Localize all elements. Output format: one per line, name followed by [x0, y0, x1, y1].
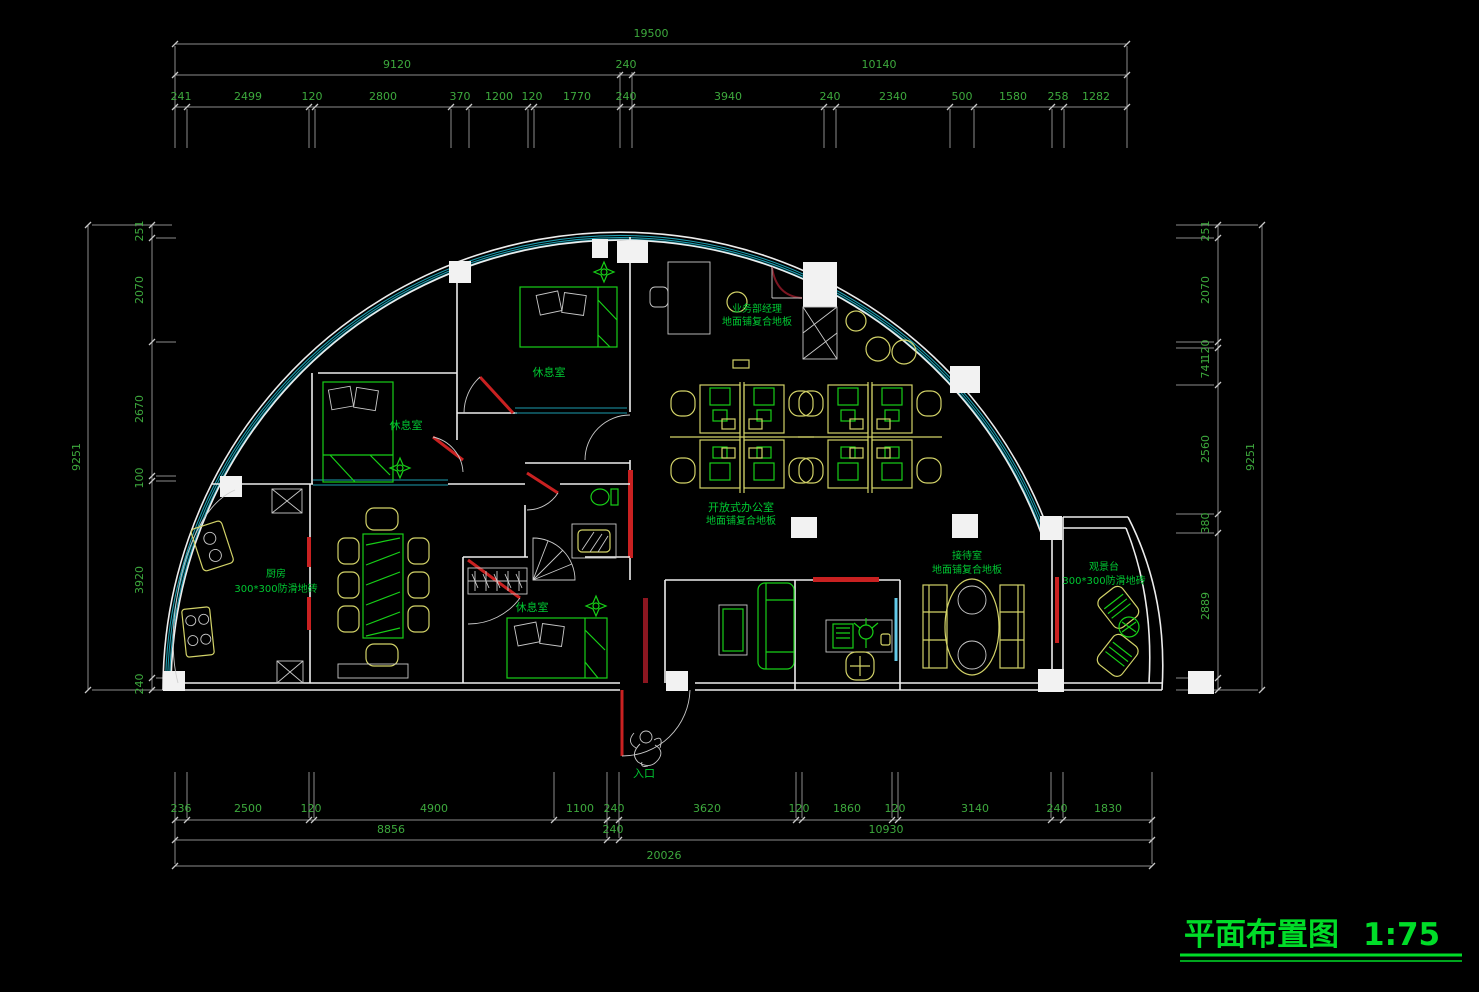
dim-label: 120 [1199, 340, 1212, 361]
room-floor-label: 300*300防滑地砖 [1062, 574, 1145, 587]
building-shell [163, 232, 1163, 690]
room-label: 业务部经理 [732, 302, 782, 315]
drawing-title: 平面布置图 [1184, 917, 1339, 953]
lounge-furniture [719, 583, 794, 669]
dim-label: 100 [133, 468, 146, 489]
workstation-cluster [798, 382, 942, 493]
dim-label: 10930 [869, 823, 904, 836]
dim-label: 370 [450, 90, 471, 103]
dim-label: 240 [616, 58, 637, 71]
entrance-figure [630, 731, 661, 767]
door-red [813, 577, 879, 582]
dim-label: 240 [1047, 802, 1068, 815]
room-floor-label: 地面铺复合地板 [932, 563, 1002, 576]
deck-furniture [1094, 584, 1141, 680]
door-leaf [480, 377, 513, 413]
dim-label: 120 [301, 802, 322, 815]
door-red [1055, 577, 1059, 643]
cad-viewport: 19500 9120 240 10140 241 2499 120 2800 3… [0, 0, 1479, 992]
dim-label: 120 [302, 90, 323, 103]
drawing-scale: 1:75 [1363, 917, 1440, 953]
dim-label: 240 [820, 90, 841, 103]
room-label: 接待室 [952, 549, 982, 562]
dim-label: 8856 [377, 823, 405, 836]
dim-label: 380 [1199, 513, 1212, 534]
door-leaf [527, 473, 558, 493]
dim-label: 9120 [383, 58, 411, 71]
red-wall-segment [307, 537, 311, 567]
dim-label: 251 [133, 221, 146, 242]
room-floor-label: 地面铺复合地板 [706, 514, 776, 527]
dim-label: 3620 [693, 802, 721, 815]
red-wall-segment [307, 597, 311, 630]
dim-label: 10140 [862, 58, 897, 71]
dim-label: 2670 [133, 395, 146, 423]
bed-mid [323, 382, 393, 482]
dim-label: 20026 [647, 849, 682, 862]
dim-label: 240 [133, 674, 146, 695]
dim-label: 3940 [714, 90, 742, 103]
dim-label: 1860 [833, 802, 861, 815]
reception-furniture [923, 579, 1024, 675]
dim-label: 241 [171, 90, 192, 103]
room-floor-label: 300*300防滑地砖 [234, 582, 317, 595]
dimension-chain-right: 251 2070 120 741 2560 380 2889 240 9251 [1176, 221, 1265, 695]
room-floor-label: 地面铺复合地板 [722, 315, 792, 328]
dim-label: 2499 [234, 90, 262, 103]
dim-label: 251 [1199, 221, 1212, 242]
dimension-chain-left: 251 2070 2670 100 3920 240 9251 [70, 221, 176, 695]
room-label: 休息室 [533, 365, 566, 379]
dim-label: 2070 [133, 276, 146, 304]
dim-label: 9251 [1244, 443, 1257, 471]
entrance-label: 入口 [633, 767, 655, 780]
dim-label: 2889 [1199, 592, 1212, 620]
interior-walls [212, 237, 1059, 690]
dim-label: 240 [604, 802, 625, 815]
dim-label: 1770 [563, 90, 591, 103]
dim-label: 500 [952, 90, 973, 103]
dim-label: 236 [171, 802, 192, 815]
dim-label: 2500 [234, 802, 262, 815]
bed-bottom [507, 618, 607, 678]
dim-label: 1282 [1082, 90, 1110, 103]
dim-label: 4900 [420, 802, 448, 815]
bed-top [520, 287, 617, 347]
title-block: 平面布置图 1:75 [1180, 917, 1462, 961]
floorplan-canvas: 19500 9120 240 10140 241 2499 120 2800 3… [0, 0, 1479, 992]
dining-set [338, 508, 429, 678]
dim-label: 240 [603, 823, 624, 836]
dim-label: 3920 [133, 566, 146, 594]
dim-label: 1830 [1094, 802, 1122, 815]
dim-label: 120 [885, 802, 906, 815]
dim-label: 741 [1199, 358, 1212, 379]
room-label: 休息室 [390, 418, 423, 432]
room-label: 休息室 [516, 600, 549, 614]
dim-label: 120 [522, 90, 543, 103]
dim-label: 1200 [485, 90, 513, 103]
dim-label: 1580 [999, 90, 1027, 103]
room-label: 观景台 [1089, 560, 1119, 573]
office-desk-group [826, 618, 892, 680]
dimension-chain-bottom: 236 2500 120 4900 1100 240 3620 120 1860… [171, 772, 1156, 869]
red-wall-segment [643, 598, 648, 683]
workstation-cluster [670, 382, 814, 493]
room-label: 开放式办公室 [708, 500, 774, 514]
dim-label: 2800 [369, 90, 397, 103]
dim-label: 2560 [1199, 435, 1212, 463]
dim-label: 2340 [879, 90, 907, 103]
dimension-chain-top: 19500 9120 240 10140 241 2499 120 2800 3… [171, 27, 1131, 148]
dim-label: 120 [789, 802, 810, 815]
dim-label: 258 [1048, 90, 1069, 103]
room-label: 厨房 [266, 567, 286, 580]
dim-label: 240 [616, 90, 637, 103]
dim-label: 2070 [1199, 276, 1212, 304]
bathroom-fixtures [533, 489, 618, 580]
dim-label: 1100 [566, 802, 594, 815]
dim-label: 3140 [961, 802, 989, 815]
wardrobe [468, 568, 527, 594]
door-leaf [468, 560, 520, 598]
dim-label: 9251 [70, 443, 83, 471]
dim-label: 19500 [634, 27, 669, 40]
